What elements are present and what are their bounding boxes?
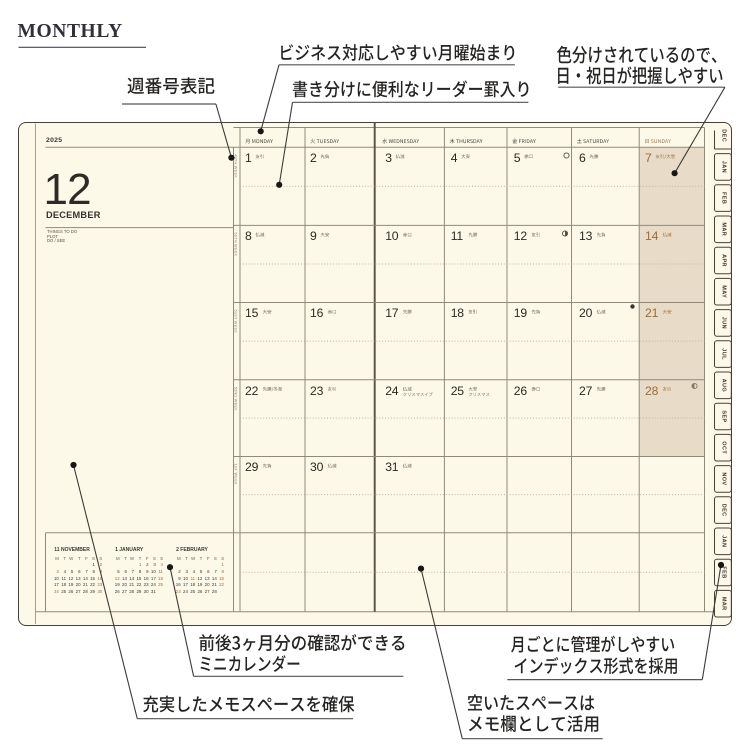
svg-text:FEB: FEB [721, 566, 727, 578]
svg-text:FEB: FEB [721, 192, 727, 204]
svg-text:DEC: DEC [721, 504, 727, 517]
svg-text:MAY: MAY [721, 285, 727, 298]
svg-text:APR: APR [721, 254, 727, 267]
svg-text:JAN: JAN [721, 161, 727, 173]
svg-text:JUL: JUL [721, 348, 727, 360]
svg-text:NOV: NOV [721, 472, 727, 485]
svg-text:MAR: MAR [721, 222, 727, 236]
svg-text:52ND WEEK: 52ND WEEK [234, 387, 239, 411]
svg-text:MAR: MAR [721, 597, 727, 611]
svg-text:SEP: SEP [721, 410, 727, 422]
svg-text:JAN: JAN [721, 535, 727, 547]
svg-text:JUN: JUN [721, 317, 727, 329]
svg-text:OCT: OCT [721, 441, 727, 454]
svg-text:1ST WEEK: 1ST WEEK [234, 464, 239, 485]
svg-text:DEC: DEC [721, 129, 727, 142]
svg-text:50TH WEEK: 50TH WEEK [234, 232, 239, 256]
svg-text:AUG: AUG [721, 379, 727, 392]
svg-text:51ST WEEK: 51ST WEEK [234, 310, 239, 334]
